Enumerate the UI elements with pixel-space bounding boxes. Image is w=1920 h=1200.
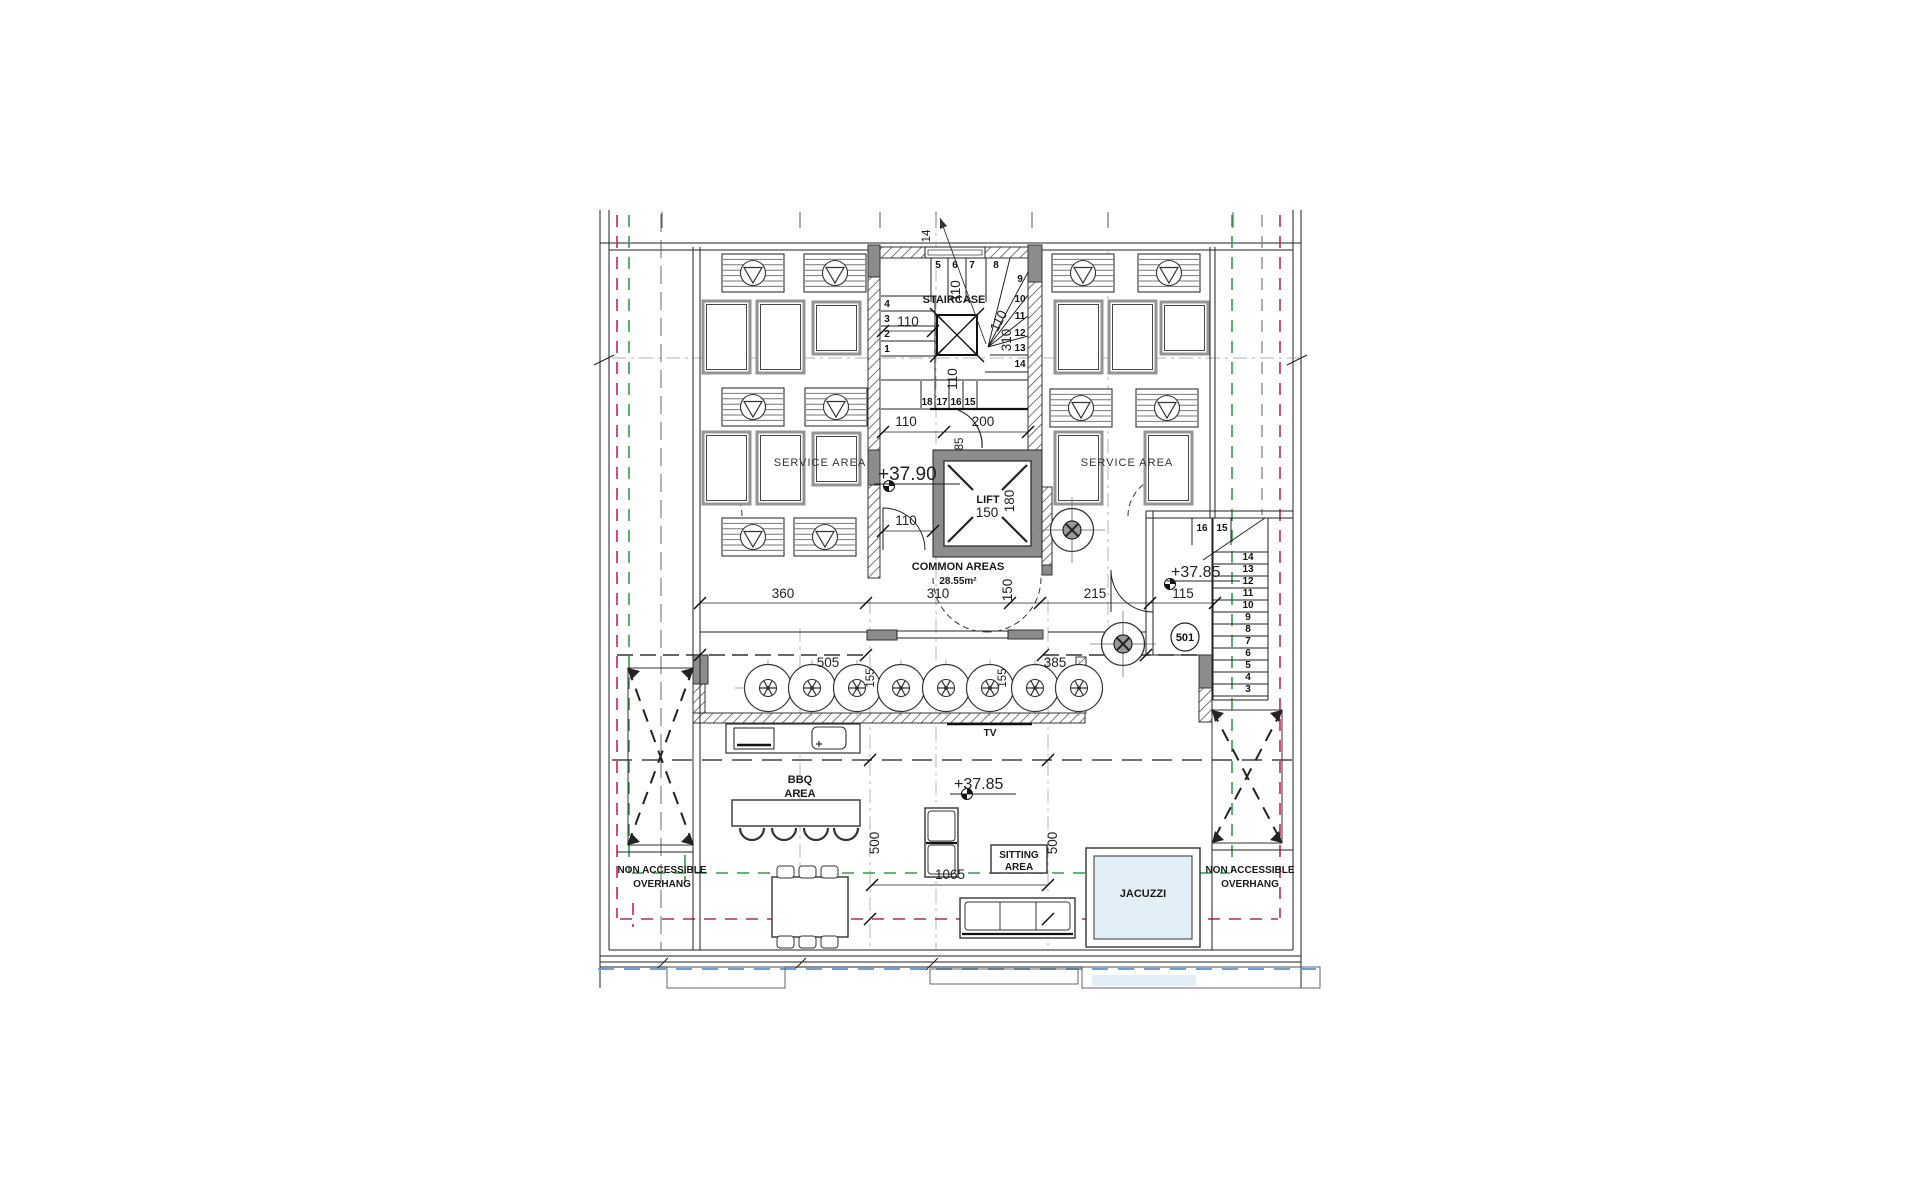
dim-lift-depth: 180 [1002,490,1017,513]
panel-icon [703,432,750,504]
stool-icon [804,828,828,840]
dim-planter-depth-right: 155 [997,668,1009,687]
common-areas-label: COMMON AREAS [912,561,1004,573]
panel-icon [813,302,860,354]
entry-step-number: 4 [1245,672,1251,683]
sink-icon [812,727,846,749]
step-number: 12 [1014,328,1026,339]
stool-icon [772,828,796,840]
entry-step-number: 7 [1245,636,1251,647]
entry-step-number: 10 [1242,600,1254,611]
dim-stair-length: 310 [999,329,1014,352]
step-number: 9 [1017,274,1023,285]
entry-step-number: 16 [1196,523,1208,534]
step-number: 16 [950,397,962,408]
dim-mid-lift-side: 150 [1000,579,1015,602]
step-number: 5 [935,260,941,271]
panel-icon [1055,301,1102,373]
elevation-service: +37.90 [878,464,937,485]
ac-unit-icon [1136,389,1198,427]
dim-jamb: 85 [954,438,966,451]
overhang-right-label-2: OVERHANG [1221,879,1279,890]
step-number: 3 [884,314,890,325]
panel-icon [1161,302,1208,354]
step-number: 18 [921,397,933,408]
lower-floor-fragments [667,967,1320,988]
sofa [960,898,1075,938]
tv-label: TV [984,728,997,739]
stool-icon [740,828,764,840]
entry-step-number: 9 [1245,612,1251,623]
dim-below-stair: 110 [895,414,917,429]
jacuzzi-label: JACUZZI [1120,888,1166,900]
overhang-left [628,668,693,845]
dim-planter-left: 505 [817,655,840,670]
planter-icon [745,660,792,716]
step-number: 8 [993,260,999,271]
dim-terrace-depth-right: 500 [1045,832,1060,855]
entry-step-number: 12 [1242,576,1254,587]
dim-corridor: 110 [895,513,917,528]
entry-step-number: 13 [1242,564,1254,575]
panel-icon [1109,301,1156,373]
overhang-left-label-2: OVERHANG [633,879,691,890]
dim-mid-porch: 115 [1172,586,1194,601]
dim-flight-left: 110 [897,314,919,329]
entry-step-number: 15 [1216,523,1228,534]
drawing-canvas: STAIRCASE LIFT COMMON AREAS 28.55m² SERV… [0,0,1920,1200]
entry-step-number: 8 [1245,624,1251,635]
ac-unit-icon [805,388,867,426]
ac-unit-icon [804,254,866,292]
step-number: 13 [1014,343,1026,354]
entry-step-number: 5 [1245,660,1251,671]
service-area-left-label: SERVICE AREA [774,457,867,469]
entry-step-number: 3 [1245,684,1251,695]
dim-terrace-depth-left: 500 [867,832,882,855]
planter-icon [878,660,925,716]
ac-unit-icon [1138,254,1200,292]
ac-unit-icon [722,254,784,292]
elevation-terrace: +37.85 [954,776,1003,793]
dim-door-opening: 200 [972,414,995,429]
step-number: 6 [952,260,958,271]
step-number: 1 [884,344,890,355]
dim-flight-top: 110 [948,280,963,302]
grid-ticks-top [662,212,1233,228]
ac-unit-icon [722,388,784,426]
planter-icon [923,660,970,716]
ac-unit-icon [1050,389,1112,427]
step-number: 10 [1014,294,1026,305]
bbq-island [732,800,860,840]
dim-stair-mid: 110 [945,368,960,390]
ac-unit-icon [794,518,856,556]
dining-set [772,866,848,948]
bbq-counter [726,724,860,753]
entry-step-number: 11 [1243,588,1254,599]
step-number: 15 [964,397,976,408]
step-number: 4 [884,299,890,310]
unit-number: 501 [1176,632,1194,644]
step-number: 11 [1015,311,1026,322]
service-area-right-label: SERVICE AREA [1081,457,1174,469]
step-number: 14 [1014,359,1026,370]
dim-mid-entry-side: 215 [1084,586,1107,601]
overhang-right-label-1: NON ACCESSIBLE [1205,865,1294,876]
dim-planter-right: 385 [1044,655,1067,670]
entry-stair [1146,511,1293,700]
dim-lift-width: 150 [976,505,999,520]
entry-step-number: 14 [1242,552,1254,563]
dim-planter-depth-left: 155 [865,668,877,687]
ac-unit-icon [722,518,784,556]
dim-mid-core: 310 [927,586,950,601]
stool-icon [834,828,858,840]
entry-step-number: 6 [1245,648,1251,659]
floor-plan-svg: STAIRCASE LIFT COMMON AREAS 28.55m² SERV… [0,0,1920,1200]
stair-top-window [925,247,985,258]
ac-unit-icon [1052,254,1114,292]
overhang-left-label-1: NON ACCESSIBLE [617,865,706,876]
step-number: 2 [884,329,890,340]
step-number: 7 [969,260,975,271]
panel-icon [757,301,804,373]
dim-terrace-width: 1065 [935,867,965,882]
elevation-entry: +37.85 [1171,564,1220,581]
bbq-area-label-1: BBQ [788,774,813,786]
sitting-area-label-2: AREA [1005,862,1033,873]
dim-mid-left: 360 [772,586,795,601]
overhang-right [1212,710,1282,843]
sitting-area-label-1: SITTING [999,850,1039,861]
dim-stair-top-width: 14 [921,229,933,242]
step-number: 17 [936,397,948,408]
panel-icon [703,301,750,373]
bbq-area-label-2: AREA [784,788,815,800]
service-area-left [703,254,867,556]
